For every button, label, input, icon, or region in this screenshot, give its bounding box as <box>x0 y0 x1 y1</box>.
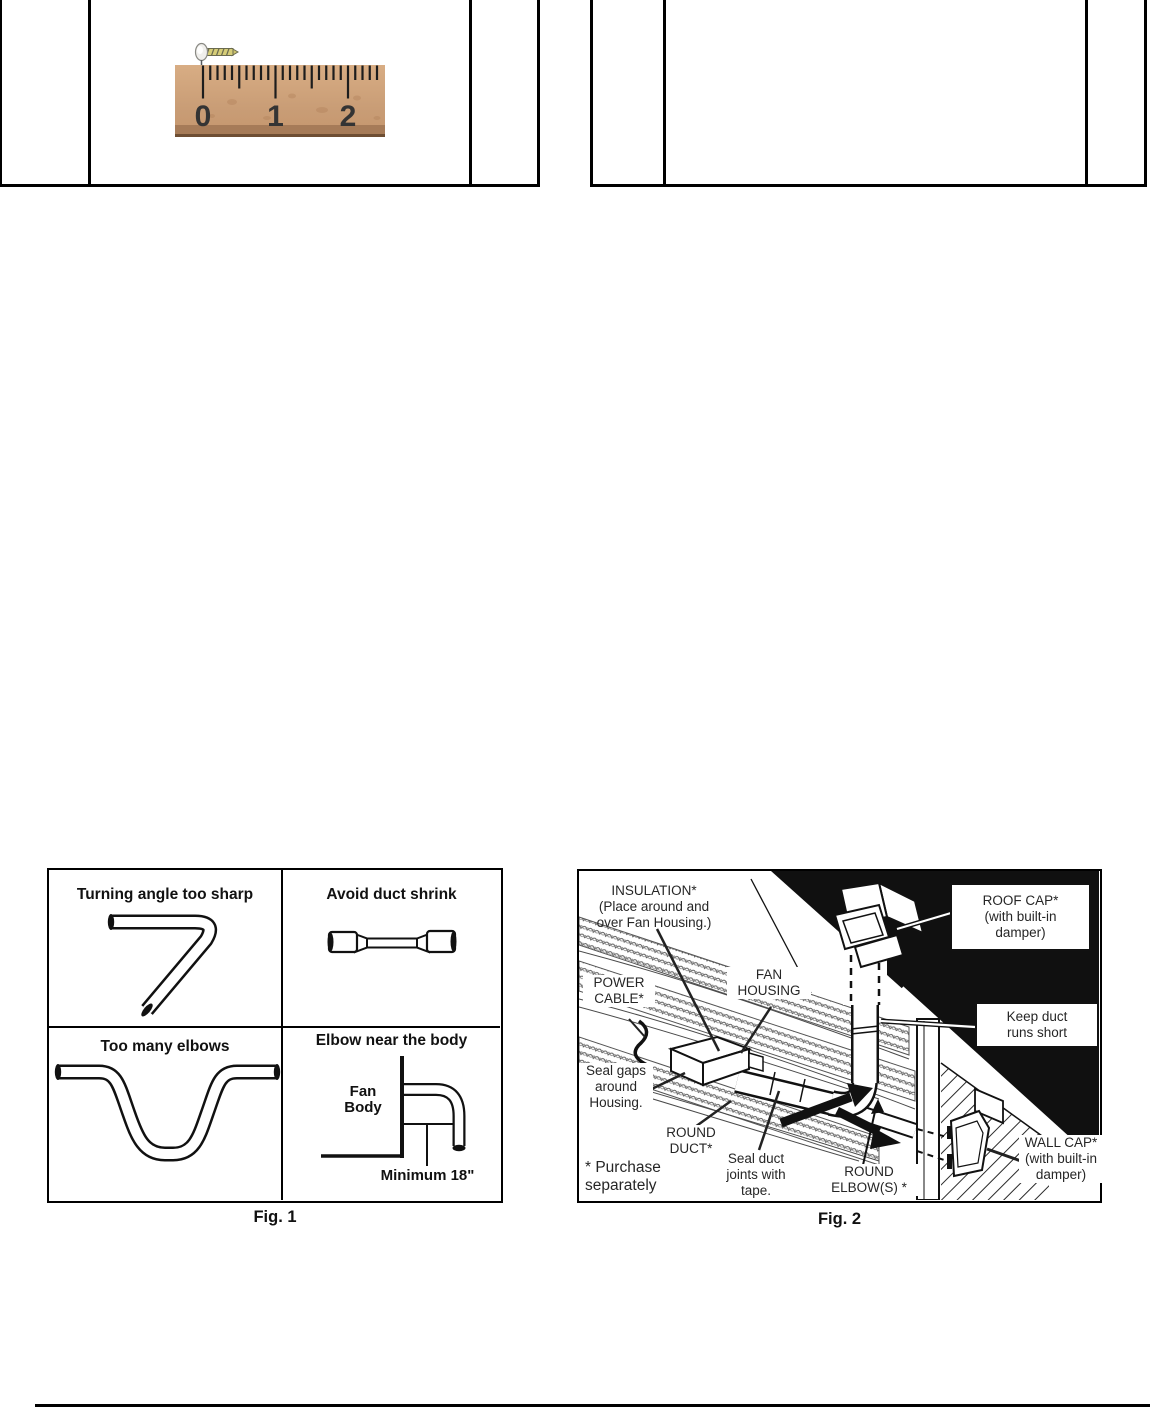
fig1-quadrant-many-elbows: Too many elbows <box>49 1028 281 1200</box>
ruler-number-0: 0 <box>195 100 212 133</box>
ruler-bottom-edge <box>175 134 385 137</box>
table-border-line <box>590 0 593 187</box>
fig2-box: INSULATION* (Place around and over Fan H… <box>577 869 1102 1203</box>
roof-cap-label: ROOF CAP* (with built-in damper) <box>950 883 1091 951</box>
fan-body-label: Fan Body <box>333 1084 393 1116</box>
shrunk-duct-drawing <box>283 870 500 1026</box>
document-page: 0 1 2 Turning angle too sharp <box>0 0 1150 1412</box>
table-border-line <box>0 184 540 187</box>
power-cable-label: POWER CABLE* <box>583 975 655 1007</box>
ruler-number-2: 2 <box>340 100 357 133</box>
wall-cap-label: WALL CAP* (with built-in damper) <box>1019 1135 1103 1183</box>
seal-gaps-label: Seal gaps around Housing. <box>579 1063 653 1111</box>
fig1-box: Turning angle too sharp Avoid duct shrin… <box>47 868 503 1203</box>
footer-rule <box>35 1404 1150 1407</box>
screw-ruler-photo: 0 1 2 <box>172 38 388 147</box>
ruler-image: 0 1 2 <box>172 38 388 142</box>
fan-housing-label: FAN HOUSING <box>727 967 811 999</box>
screw-image <box>196 44 239 66</box>
fig2-caption: Fig. 2 <box>577 1210 1102 1229</box>
round-elbow-label: ROUND ELBOW(S) * <box>815 1164 923 1196</box>
table-border-line <box>1144 0 1147 187</box>
fig1-quadrant-duct-shrink: Avoid duct shrink <box>283 870 500 1026</box>
wall-cap-drawing <box>947 1111 989 1176</box>
table-border-line <box>663 0 666 187</box>
purchase-separately-label: * Purchase separately <box>585 1159 697 1196</box>
table-border-line <box>469 0 472 187</box>
table-border-line <box>590 184 1147 187</box>
table-border-line <box>1085 0 1088 187</box>
fig1-quadrant-turning-angle: Turning angle too sharp <box>49 870 281 1026</box>
many-elbows-duct-drawing <box>49 1028 281 1200</box>
round-duct-label: ROUND DUCT* <box>651 1125 731 1157</box>
keep-duct-label: Keep duct runs short <box>975 1002 1099 1048</box>
sharp-angle-duct-drawing <box>49 870 281 1026</box>
ruler-number-1: 1 <box>267 100 284 133</box>
insulation-label: INSULATION* (Place around and over Fan H… <box>587 883 721 931</box>
table-border-line <box>0 0 2 187</box>
fig1-caption: Fig. 1 <box>47 1208 503 1227</box>
seal-joints-label: Seal duct joints with tape. <box>723 1151 789 1199</box>
fig1-quadrant-elbow-near-body: Elbow near the body Fan Body Minimum 18" <box>283 1028 500 1200</box>
table-border-line <box>537 0 540 187</box>
table-border-line <box>88 0 91 187</box>
minimum-18-label: Minimum 18" <box>365 1168 490 1184</box>
